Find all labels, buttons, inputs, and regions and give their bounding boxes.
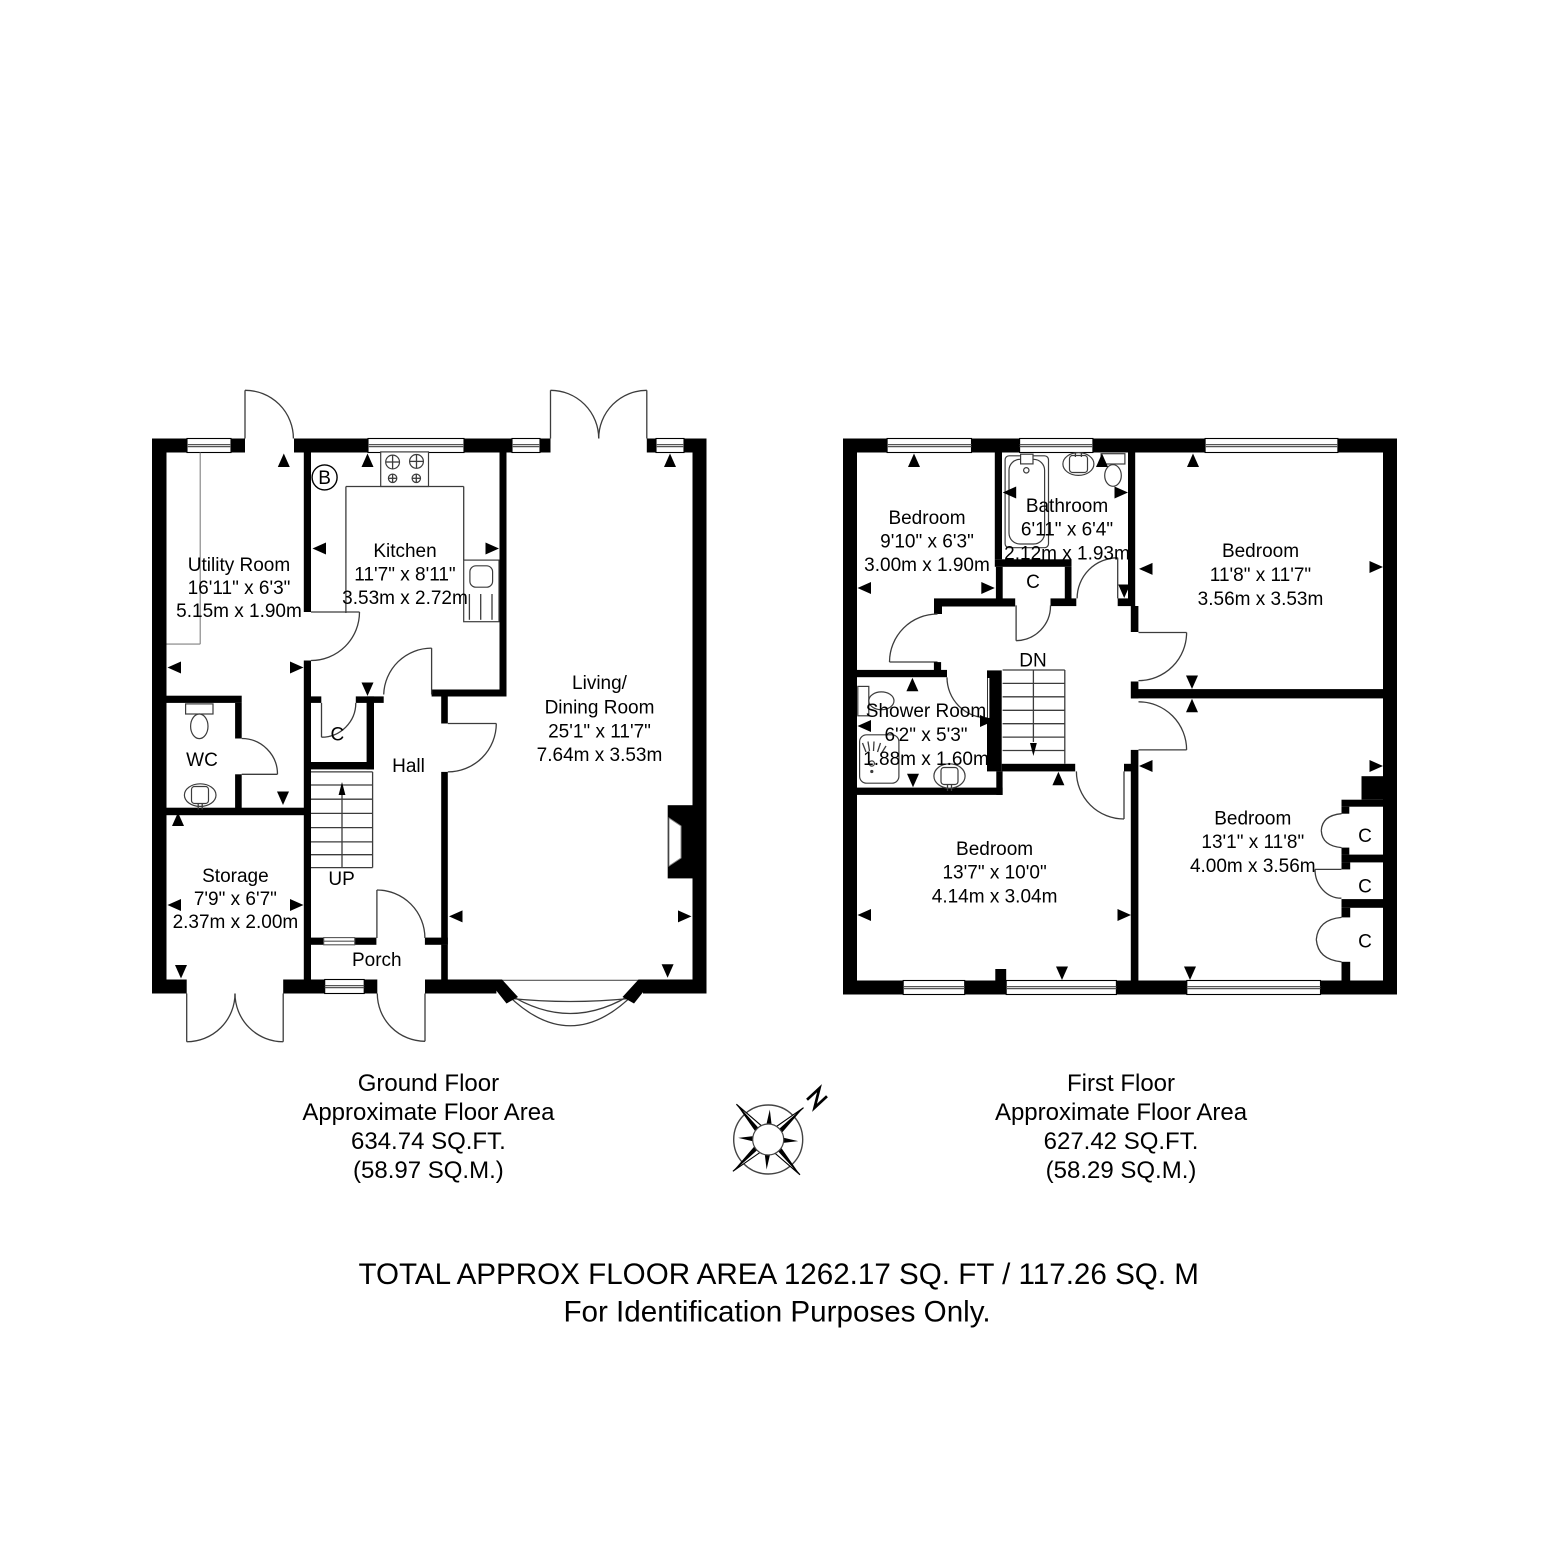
svg-text:7.64m x 3.53m: 7.64m x 3.53m [537, 745, 663, 766]
svg-text:Living/: Living/ [572, 673, 628, 694]
svg-text:UP: UP [328, 869, 354, 890]
svg-text:6'2" x 5'3": 6'2" x 5'3" [884, 725, 967, 746]
svg-text:Dining Room: Dining Room [545, 698, 655, 719]
svg-text:5.15m x 1.90m: 5.15m x 1.90m [176, 601, 302, 622]
svg-text:634.74 SQ.FT.: 634.74 SQ.FT. [351, 1128, 506, 1155]
svg-text:Ground Floor: Ground Floor [358, 1070, 499, 1097]
svg-text:3.56m x 3.53m: 3.56m x 3.53m [1198, 589, 1324, 610]
svg-text:13'7" x 10'0": 13'7" x 10'0" [942, 863, 1046, 884]
svg-text:2.12m x 1.93m: 2.12m x 1.93m [1004, 544, 1130, 565]
svg-text:Storage: Storage [202, 866, 269, 887]
svg-text:C: C [331, 725, 345, 746]
svg-text:16'11" x 6'3": 16'11" x 6'3" [188, 578, 291, 599]
svg-text:Approximate Floor Area: Approximate Floor Area [995, 1099, 1248, 1126]
svg-text:Bedroom: Bedroom [956, 839, 1033, 860]
svg-text:3.00m x 1.90m: 3.00m x 1.90m [864, 555, 990, 576]
svg-text:3.53m x 2.72m: 3.53m x 2.72m [342, 588, 468, 609]
svg-text:4.00m x 3.56m: 4.00m x 3.56m [1190, 856, 1316, 877]
svg-text:C: C [1358, 877, 1372, 898]
svg-text:Utility Room: Utility Room [188, 555, 290, 576]
svg-text:Bedroom: Bedroom [1214, 808, 1291, 829]
svg-text:Shower Room: Shower Room [866, 701, 986, 722]
svg-text:Bedroom: Bedroom [1222, 541, 1299, 562]
svg-text:C: C [1358, 826, 1372, 847]
svg-text:2.37m x 2.00m: 2.37m x 2.00m [173, 912, 299, 933]
svg-text:13'1" x 11'8": 13'1" x 11'8" [1201, 832, 1304, 853]
svg-text:6'11" x 6'4": 6'11" x 6'4" [1021, 520, 1113, 541]
svg-text:WC: WC [186, 750, 218, 771]
svg-text:25'1" x 11'7": 25'1" x 11'7" [548, 722, 651, 743]
svg-text:1.88m x 1.60m: 1.88m x 1.60m [863, 749, 989, 770]
svg-text:(58.29 SQ.M.): (58.29 SQ.M.) [1046, 1157, 1197, 1184]
svg-text:Hall: Hall [392, 756, 425, 777]
svg-text:DN: DN [1019, 651, 1046, 672]
svg-text:9'10" x 6'3": 9'10" x 6'3" [880, 532, 974, 553]
svg-text:First Floor: First Floor [1067, 1070, 1175, 1097]
svg-text:Bedroom: Bedroom [888, 508, 965, 529]
svg-text:Bathroom: Bathroom [1026, 496, 1108, 517]
svg-text:Porch: Porch [352, 950, 402, 971]
svg-text:11'7" x 8'11": 11'7" x 8'11" [354, 565, 455, 586]
svg-text:Approximate Floor Area: Approximate Floor Area [302, 1099, 555, 1126]
svg-text:7'9" x 6'7": 7'9" x 6'7" [194, 889, 277, 910]
svg-text:11'8" x 11'7": 11'8" x 11'7" [1210, 565, 1311, 586]
svg-text:(58.97 SQ.M.): (58.97 SQ.M.) [353, 1157, 504, 1184]
svg-text:C: C [1026, 572, 1040, 593]
svg-text:627.42 SQ.FT.: 627.42 SQ.FT. [1044, 1128, 1199, 1155]
svg-text:TOTAL APPROX FLOOR AREA 1262.1: TOTAL APPROX FLOOR AREA 1262.17 SQ. FT /… [358, 1258, 1199, 1291]
svg-text:C: C [1358, 932, 1372, 953]
svg-text:For Identification Purposes On: For Identification Purposes Only. [563, 1296, 990, 1329]
svg-text:Kitchen: Kitchen [373, 541, 436, 562]
svg-text:4.14m x 3.04m: 4.14m x 3.04m [932, 886, 1058, 907]
svg-text:B: B [318, 468, 331, 489]
